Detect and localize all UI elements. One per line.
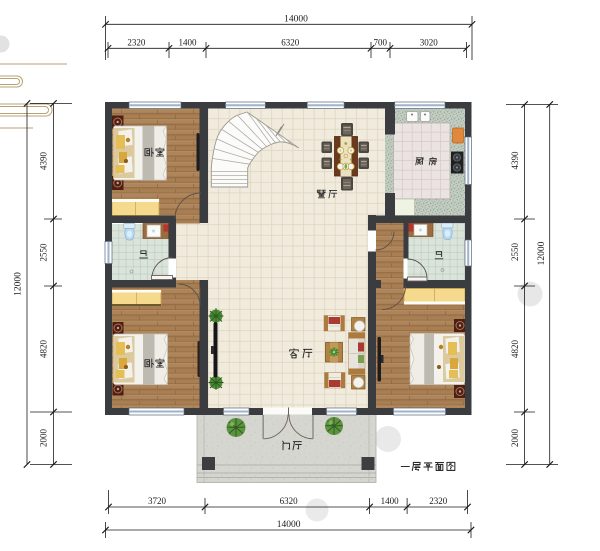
- svg-text:700: 700: [374, 38, 388, 48]
- svg-text:4820: 4820: [39, 340, 49, 359]
- svg-text:4390: 4390: [510, 151, 520, 170]
- svg-text:12000: 12000: [537, 241, 547, 265]
- svg-text:4390: 4390: [39, 152, 49, 171]
- svg-text:2320: 2320: [127, 38, 146, 48]
- svg-text:2000: 2000: [510, 429, 520, 448]
- svg-text:12000: 12000: [14, 272, 24, 296]
- svg-text:2550: 2550: [39, 243, 49, 262]
- svg-text:14000: 14000: [284, 15, 308, 25]
- svg-text:3720: 3720: [148, 496, 167, 506]
- svg-text:4820: 4820: [510, 340, 520, 359]
- svg-text:6320: 6320: [280, 496, 299, 506]
- svg-text:2320: 2320: [429, 496, 448, 506]
- svg-text:6320: 6320: [281, 38, 300, 48]
- svg-text:3020: 3020: [420, 38, 439, 48]
- svg-text:2000: 2000: [39, 429, 49, 448]
- svg-text:14000: 14000: [277, 520, 301, 530]
- svg-text:2550: 2550: [510, 243, 520, 262]
- svg-text:1400: 1400: [381, 496, 400, 506]
- svg-text:1400: 1400: [179, 38, 198, 48]
